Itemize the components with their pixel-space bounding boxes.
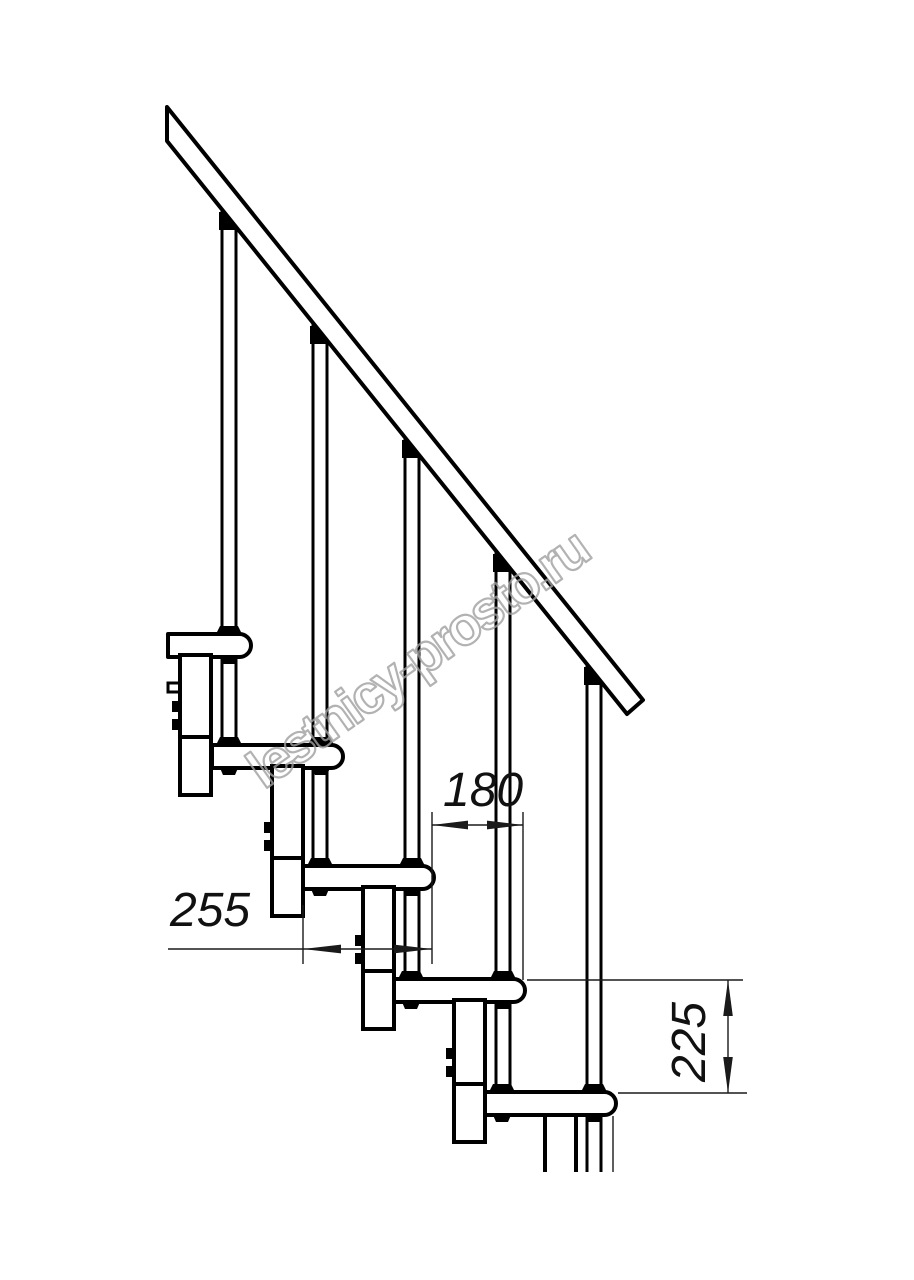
nut-icon (312, 768, 330, 775)
module-bolt-icon (355, 953, 363, 964)
module-bolt-icon (446, 1048, 454, 1059)
fitting-icon (581, 1084, 607, 1092)
tread-5 (485, 1092, 616, 1115)
arrow-right-icon (394, 945, 432, 954)
dimension-label-255: 255 (169, 884, 250, 937)
nut-icon (311, 889, 329, 896)
nut-icon (403, 889, 421, 896)
module-bolt-icon (264, 840, 272, 851)
fitting-icon (490, 971, 516, 979)
baluster-3 (405, 436, 419, 979)
fitting-icon (216, 626, 242, 634)
dimension-label-180: 180 (443, 764, 523, 817)
module-bolt-icon (264, 822, 272, 833)
arrow-left-icon (432, 821, 468, 830)
baluster-1 (222, 208, 236, 745)
module-bolt-icon (355, 935, 363, 946)
module-bolt-icon (172, 719, 180, 730)
dimension-label-225: 225 (663, 1002, 716, 1083)
fitting-icon (399, 858, 425, 866)
nut-icon (220, 657, 238, 664)
arrow-down-icon (723, 1057, 733, 1093)
dimension-225: 225 (527, 980, 747, 1172)
fitting-icon (307, 858, 333, 866)
fitting-icon (489, 1084, 515, 1092)
staircase-drawing-page: 255 180 225 lestnicy-prosto.ru (0, 0, 914, 1280)
nut-icon (402, 1002, 420, 1009)
nut-icon (585, 1115, 603, 1122)
arrow-up-icon (723, 980, 733, 1016)
fitting-icon (398, 971, 424, 979)
module-bolt-icon (172, 701, 180, 712)
module-3 (355, 887, 394, 1029)
baluster-2 (313, 322, 327, 866)
module-1 (168, 655, 211, 795)
nut-icon (493, 1115, 511, 1122)
fitting-icon (216, 737, 242, 745)
arrow-right-icon (487, 821, 523, 830)
nut-icon (494, 1002, 512, 1009)
nut-icon (220, 768, 238, 775)
staircase-technical-drawing: 255 180 225 lestnicy-prosto.ru (0, 0, 914, 1280)
module-5 (545, 1113, 576, 1172)
module-4 (446, 1000, 485, 1142)
arrow-left-icon (303, 945, 341, 954)
module-bolt-icon (446, 1066, 454, 1077)
